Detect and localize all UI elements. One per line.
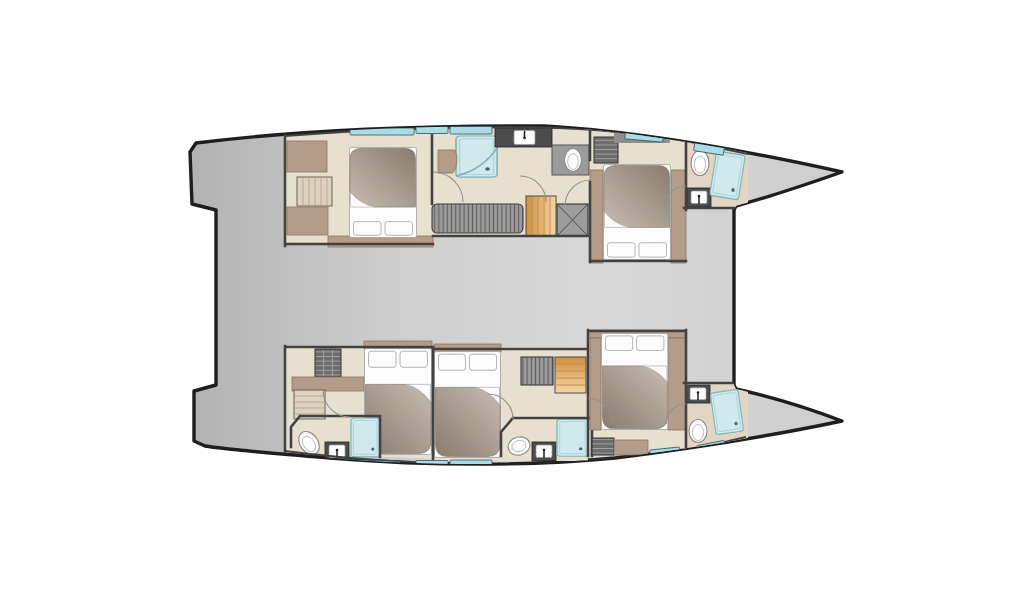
side-locker [671, 170, 686, 263]
companionway-stairs [555, 357, 586, 393]
companionway-stairs [526, 196, 556, 236]
vanity-seat [438, 150, 457, 173]
shelf-unit [521, 357, 553, 385]
cabin-steps [297, 177, 332, 206]
slatted-bench [432, 204, 523, 233]
dresser [292, 377, 364, 391]
shower [557, 419, 588, 456]
window [450, 460, 492, 468]
lower-bow-sink [686, 385, 710, 403]
upper-forward-bed [604, 164, 671, 259]
upper-bow-sink [687, 188, 711, 207]
shower [351, 418, 380, 457]
window [416, 127, 448, 134]
cabinet [287, 207, 328, 235]
cabin-steps [294, 390, 325, 419]
wardrobe [287, 141, 327, 172]
catamaran-deck-plan: Catamaran yacht deck layout plan [0, 0, 1024, 600]
upper-bow-shower [710, 151, 746, 200]
side-locker [590, 338, 601, 430]
window [450, 127, 492, 135]
upper-bow-toilet [691, 151, 709, 176]
lower-bow-shower [710, 389, 743, 434]
locker [614, 440, 648, 455]
upper-mid-toilet [552, 145, 589, 175]
shelf-unit [592, 438, 614, 455]
catamaran-layout-page: Catamaran yacht deck layout plan [0, 0, 1024, 600]
upper-mid-shower [456, 136, 497, 177]
lower-bow-toilet [689, 420, 707, 443]
upper-aft-bed [350, 147, 417, 237]
lower-mid-bed [434, 352, 500, 458]
side-locker [590, 170, 603, 263]
lower-hull [285, 330, 748, 465]
sink-counter [495, 128, 552, 147]
storage-box [557, 204, 588, 236]
shelf-unit [315, 349, 341, 377]
